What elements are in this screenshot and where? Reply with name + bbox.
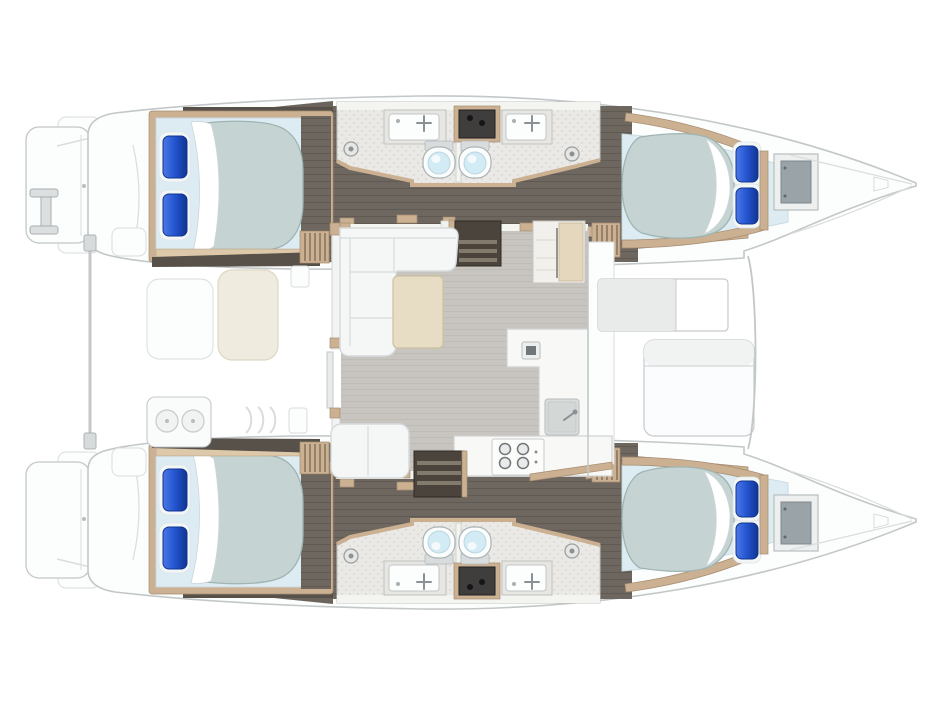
catamaran-floor-plan [0,0,940,705]
coffee-table [393,276,443,348]
burner-icon [518,458,529,469]
galley-sink [545,399,579,435]
crossbeam-cleat [84,235,96,251]
burner-icon [500,458,511,469]
door-panel [327,352,333,408]
side-locker [289,408,307,433]
crossbeam-cleat [84,433,96,449]
cockpit-step [112,228,146,256]
fridge-cabinet [533,221,585,283]
sun-pad [598,279,728,331]
wall-trim [520,223,534,231]
galley-appliance [522,342,540,359]
forward-seat [644,340,754,436]
foredeck [588,242,756,464]
cockpit-steps-lines [246,407,275,433]
burner-icon [518,444,529,455]
companionway-stairs-starboard [414,451,467,497]
cockpit-table [218,270,278,360]
forward-step-band [588,242,614,464]
floor-plan-svg [0,0,940,705]
salon [327,220,612,497]
wet-bar [147,397,211,447]
cockpit-seat [147,279,213,359]
cooktop [492,439,544,475]
side-locker [291,266,309,287]
cockpit-step [112,448,146,476]
burner-icon [500,444,511,455]
aft-bench [331,424,409,478]
